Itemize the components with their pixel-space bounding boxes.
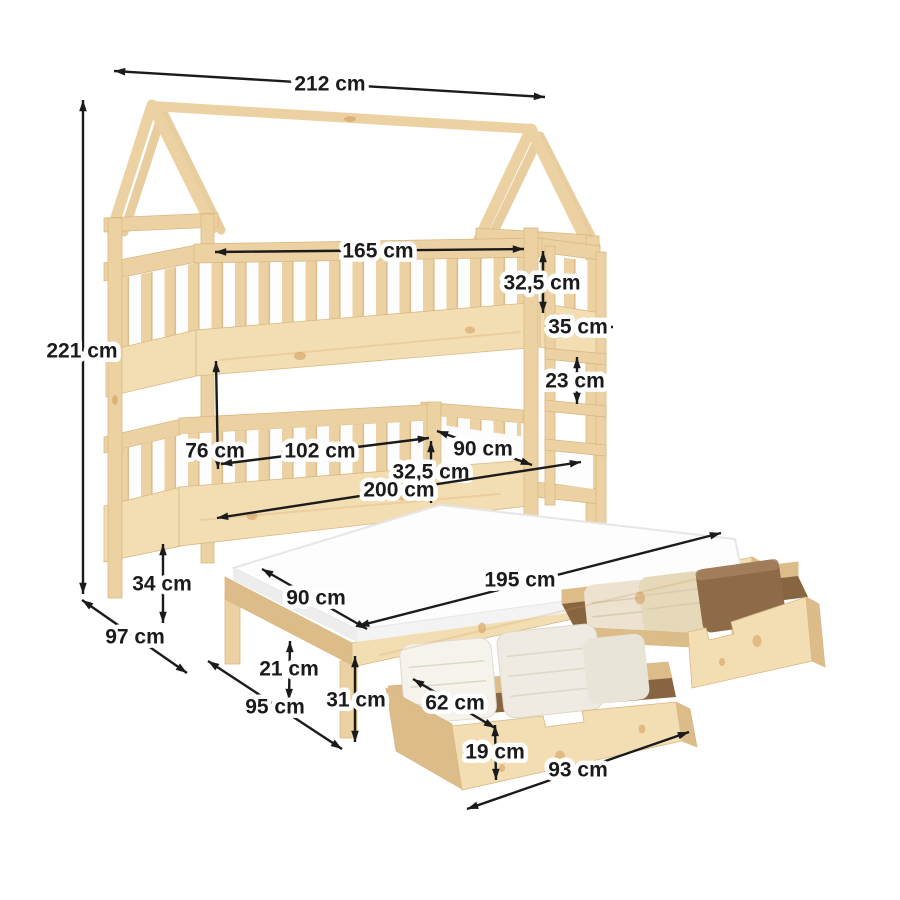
trundle-leg-left [225,597,240,664]
wood-knot [465,327,475,334]
dimension-label: 90 cm [286,587,346,610]
dimension-label: 221 cm [46,340,117,363]
dimension-ladder-width: 35 cm [545,316,613,339]
roof-frame [104,105,596,249]
dimension-label: 76 cm [185,440,245,463]
ladder-right-rail [596,252,606,533]
wood-knot [499,764,505,772]
front-left-post [108,218,122,598]
dimension-label: 212 cm [294,73,365,96]
dimension-roof-ridge-length: 212 cm [114,71,545,97]
dimension-label: 195 cm [484,569,555,592]
wood-knot [639,725,646,734]
dimension-label: 90 cm [453,438,513,461]
wood-knot [112,395,118,405]
dimension-leg-height: 34 cm [132,544,192,623]
dimension-label: 35 cm [548,316,608,339]
dimension-trundle-clearance: 21 cm [259,641,319,700]
dimension-label: 200 cm [363,479,434,502]
wood-knot [344,116,356,122]
dimension-label: 19 cm [465,741,525,764]
dimension-label: 93 cm [548,759,608,782]
wood-knot [719,658,725,666]
diagram-canvas: 212 cm221 cm165 cm32,5 cm35 cm23 cm76 cm… [0,0,900,900]
dimension-label: 21 cm [259,658,319,681]
dimension-label: 62 cm [425,692,485,715]
dimension-label: 31 cm [326,689,386,712]
dimension-label: 165 cm [342,240,413,263]
roof-ridge-beam [152,106,532,129]
dimension-label: 102 cm [284,440,355,463]
dimension-trundle-frame-height: 31 cm [326,656,386,742]
wood-knot [753,635,762,647]
dimension-label: 95 cm [245,696,305,719]
dimension-frame-depth: 97 cm [82,600,187,673]
folded-blanket-white [582,633,651,705]
dimension-label: 34 cm [132,573,192,596]
bed-diagram-svg: 212 cm221 cm165 cm32,5 cm35 cm23 cm76 cm… [0,0,900,900]
dimension-label: 32,5 cm [503,272,580,295]
dimension-label: 97 cm [105,626,165,649]
dimension-label: 23 cm [545,370,605,393]
